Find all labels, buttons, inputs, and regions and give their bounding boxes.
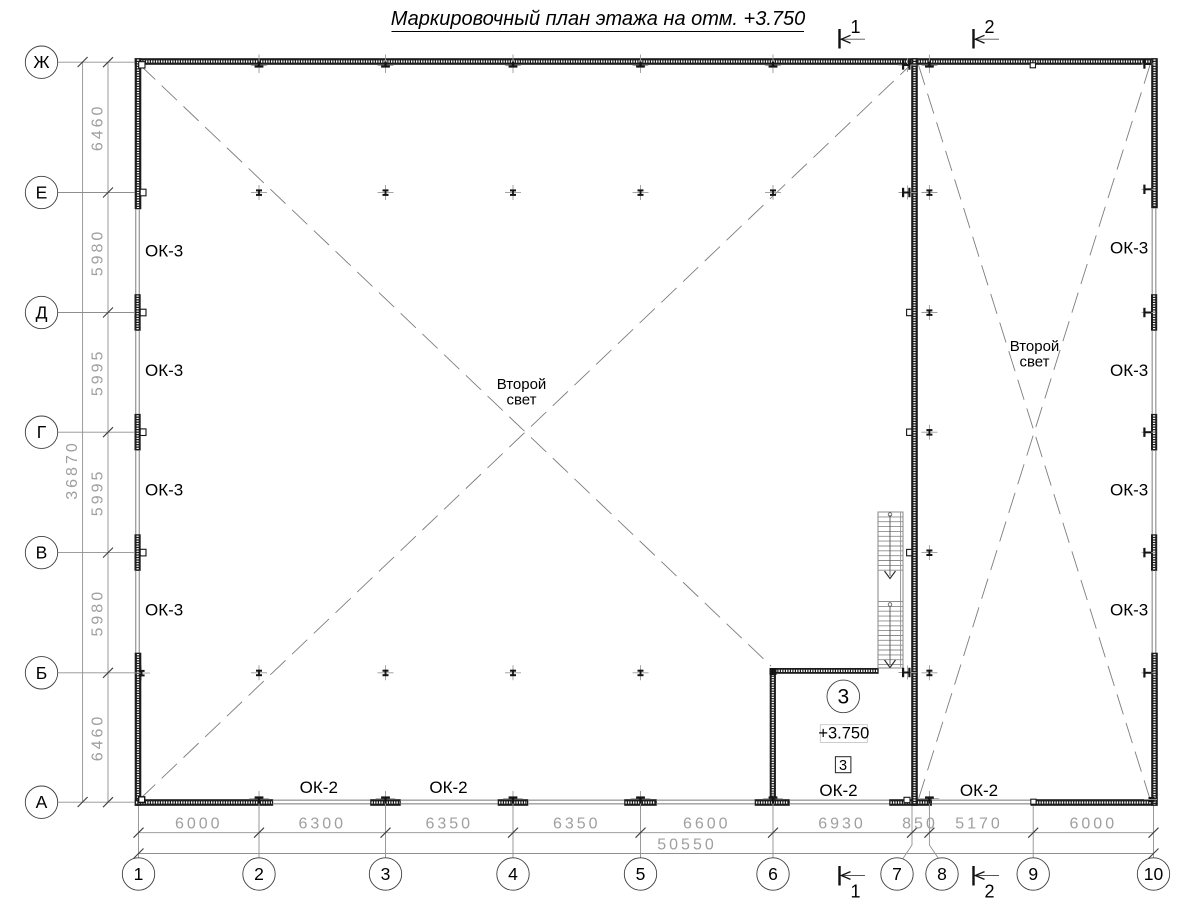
svg-text:10: 10 — [1144, 864, 1164, 884]
svg-text:Г: Г — [37, 422, 47, 442]
svg-text:В: В — [36, 543, 48, 563]
svg-text:6300: 6300 — [298, 815, 346, 832]
svg-text:свет: свет — [506, 392, 536, 409]
svg-text:1: 1 — [850, 882, 860, 900]
svg-text:2: 2 — [984, 882, 994, 900]
svg-text:6460: 6460 — [90, 104, 107, 152]
svg-text:3: 3 — [839, 758, 847, 774]
svg-text:6350: 6350 — [553, 815, 601, 832]
svg-text:36870: 36870 — [64, 440, 81, 500]
svg-text:Д: Д — [36, 303, 48, 323]
svg-text:5980: 5980 — [90, 229, 107, 277]
svg-text:ОК-2: ОК-2 — [429, 778, 467, 797]
svg-text:ОК-2: ОК-2 — [819, 781, 857, 800]
svg-text:Маркировочный план этажа на от: Маркировочный план этажа на отм. +3.750 — [391, 8, 806, 30]
svg-text:свет: свет — [1019, 354, 1049, 371]
svg-text:5980: 5980 — [90, 589, 107, 637]
svg-text:ОК-2: ОК-2 — [960, 781, 998, 800]
svg-text:ОК-2: ОК-2 — [300, 778, 338, 797]
svg-text:6460: 6460 — [90, 714, 107, 762]
svg-text:1: 1 — [134, 864, 144, 884]
svg-text:2: 2 — [984, 17, 994, 37]
svg-text:3: 3 — [837, 686, 849, 709]
svg-text:4: 4 — [508, 864, 518, 884]
svg-text:+3.750: +3.750 — [818, 725, 869, 743]
svg-text:6600: 6600 — [683, 815, 731, 832]
svg-text:6000: 6000 — [1070, 815, 1118, 832]
svg-text:6: 6 — [768, 864, 778, 884]
svg-text:3: 3 — [381, 864, 391, 884]
svg-text:2: 2 — [254, 864, 264, 884]
svg-text:8: 8 — [937, 864, 947, 884]
svg-text:9: 9 — [1028, 864, 1038, 884]
svg-text:1: 1 — [850, 17, 860, 37]
svg-text:ОК-3: ОК-3 — [1110, 481, 1148, 500]
svg-text:6350: 6350 — [425, 815, 473, 832]
svg-text:5170: 5170 — [955, 815, 1003, 832]
svg-text:А: А — [36, 792, 48, 812]
svg-text:ОК-3: ОК-3 — [145, 481, 183, 500]
svg-text:ОК-3: ОК-3 — [145, 361, 183, 380]
svg-text:Е: Е — [36, 183, 48, 203]
svg-text:5995: 5995 — [90, 349, 107, 397]
svg-text:Второй: Второй — [1010, 338, 1060, 355]
svg-text:850: 850 — [902, 815, 938, 832]
svg-text:ОК-3: ОК-3 — [145, 601, 183, 620]
svg-text:7: 7 — [892, 864, 902, 884]
svg-text:ОК-3: ОК-3 — [1110, 239, 1148, 258]
svg-text:5995: 5995 — [90, 469, 107, 517]
svg-text:Б: Б — [36, 663, 47, 683]
svg-text:6000: 6000 — [175, 815, 223, 832]
svg-text:ОК-3: ОК-3 — [1110, 601, 1148, 620]
svg-text:ОК-3: ОК-3 — [145, 242, 183, 261]
svg-text:ОК-3: ОК-3 — [1110, 361, 1148, 380]
svg-text:Ж: Ж — [33, 52, 49, 72]
svg-text:Второй: Второй — [497, 376, 547, 393]
svg-text:5: 5 — [636, 864, 646, 884]
svg-text:6930: 6930 — [818, 815, 866, 832]
svg-text:50550: 50550 — [657, 836, 717, 853]
